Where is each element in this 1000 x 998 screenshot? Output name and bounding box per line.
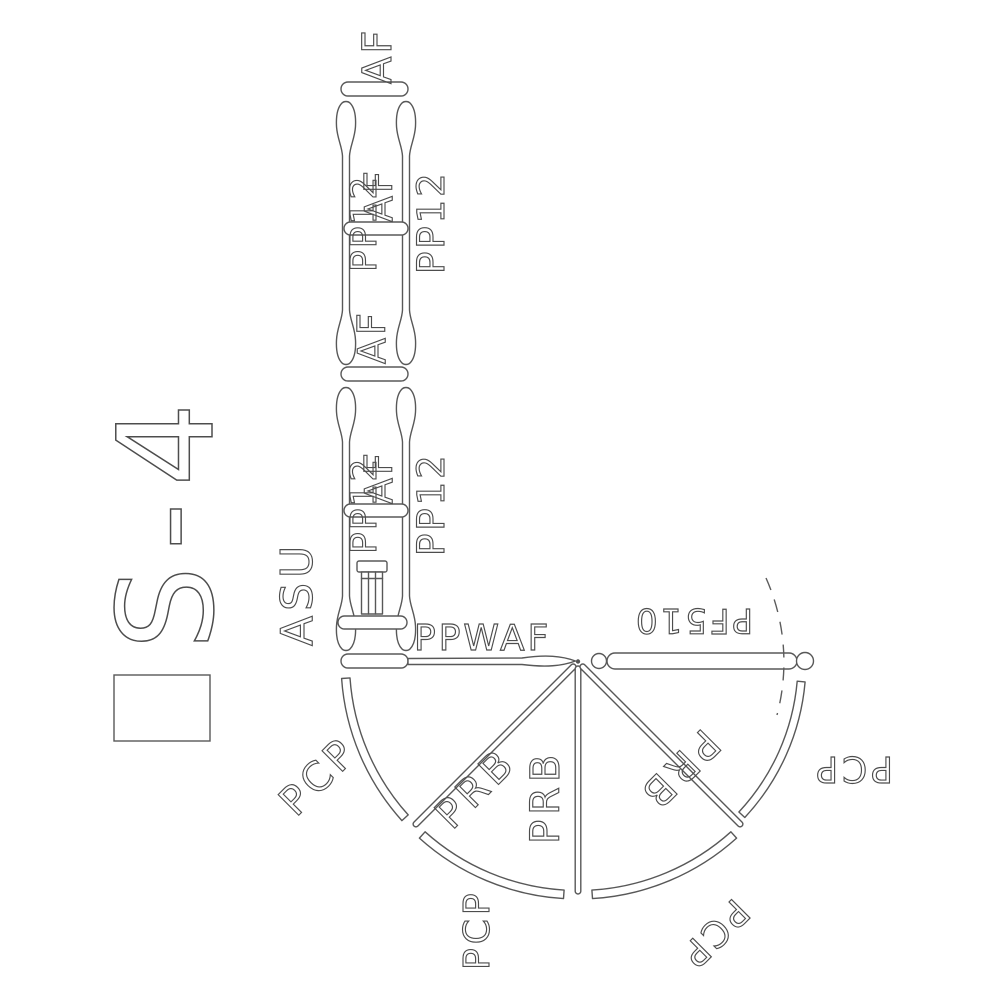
- pcp-arc-lower-right: [592, 832, 737, 899]
- pcp-arc-right: [739, 681, 805, 817]
- label-pf510: PF510: [633, 600, 753, 640]
- fan-center-dot: [576, 659, 580, 663]
- label-ppwaf: PPWAF: [414, 618, 551, 659]
- label-af-b-mid: AF: [357, 450, 401, 504]
- pf510-end-circle-left: [592, 654, 607, 669]
- pf510-bar: [607, 653, 797, 669]
- label-prb-right: PRB: [629, 720, 728, 819]
- ppwaf-ledger-end: [341, 654, 408, 668]
- title-text: S-4: [90, 387, 244, 650]
- drawing-canvas: S-4 AF PP12 AF PP12 AF PP12 AF: [0, 0, 1000, 998]
- label-pp12-a-right: PP12: [410, 170, 453, 274]
- label-prb-center: PRB: [523, 750, 569, 844]
- label-af-top: AF: [355, 28, 401, 84]
- asu-jack-flange: [357, 561, 387, 572]
- af-coupler-joint: [341, 367, 408, 381]
- label-asu: ASU: [272, 541, 323, 646]
- asu-jack: [357, 561, 387, 614]
- base-coupler: [338, 616, 407, 629]
- prb-ray-center: [575, 666, 581, 894]
- label-pcp-lower-right: PCP: [671, 891, 757, 977]
- cad-drawing-page: S-4 AF PP12 AF PP12 AF PP12 AF: [0, 0, 1000, 998]
- label-pcp-right: PCP: [812, 748, 893, 789]
- label-af-joint: AF: [350, 310, 394, 364]
- swing-dashed-arc: [766, 578, 784, 715]
- title-box-glyph: [114, 675, 210, 741]
- pf510-end-circle-right: [797, 653, 814, 670]
- label-pcp-lower-left: PCP: [457, 889, 498, 970]
- label-pcp-upper-left: PCP: [271, 728, 368, 825]
- label-prb-left: PRB: [427, 739, 526, 838]
- label-af-a-mid: AF: [357, 168, 401, 222]
- label-pp12-b-right: PP12: [410, 452, 453, 556]
